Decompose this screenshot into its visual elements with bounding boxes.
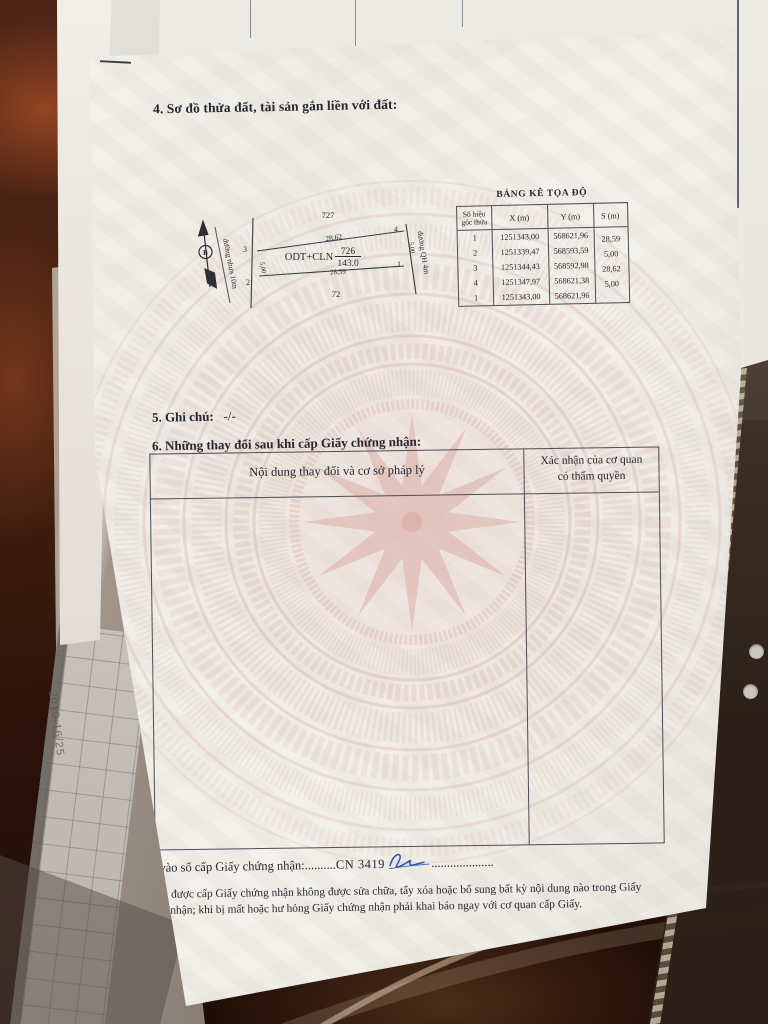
plot-number: 726 (341, 247, 356, 257)
registry-dots: .................... (431, 855, 494, 870)
adjacent-plot-bottom: 72 (332, 289, 341, 299)
corner-id: 3 (458, 263, 492, 273)
corner-1: 1 (397, 260, 401, 269)
changes-col2-header: Xác nhận của cơ quan có thẩm quyền (524, 452, 658, 485)
y-value: 568621,38 (549, 276, 595, 286)
y-value: 568621,96 (548, 231, 594, 241)
corner-id: 1 (458, 233, 492, 243)
back-sheet-edge-line (737, 0, 739, 208)
signature-scribble-icon (386, 849, 432, 874)
y-value: 568592,98 (548, 261, 594, 271)
photo-scene: { "colors": { "paper": "#f2efe9", "water… (0, 0, 768, 1024)
adjacent-plot-top: 727 (322, 210, 335, 220)
header-divider (151, 491, 659, 499)
y-value: 568593,59 (548, 246, 594, 256)
s-value: 5,00 (595, 279, 629, 289)
registry-dots: .......... (305, 858, 336, 873)
punch-hole (749, 644, 764, 659)
corner-3: 3 (243, 245, 247, 254)
edge-left-length: 5,00 (258, 261, 267, 274)
x-value: 1251339,47 (492, 247, 548, 257)
edge-top-length: 28,62 (325, 232, 343, 243)
corner-2: 2 (246, 278, 250, 287)
col-header-s: S (m) (593, 211, 627, 221)
plot-diagram: B đường nhựa 10m 3 2 4 1 727 72 28,62 28… (158, 196, 450, 324)
y-value: 568621,96 (549, 291, 595, 301)
section5-label: 5. Ghi chú: (152, 409, 214, 425)
north-label: B (203, 249, 208, 257)
x-value: 1251343,00 (493, 292, 549, 302)
road-label-right: đường QH 4m (416, 230, 432, 274)
corner-id: 1 (459, 293, 493, 303)
x-value: 1251343,00 (492, 232, 548, 242)
s-value: 28,59 (594, 234, 628, 244)
corner-id: 4 (459, 278, 493, 288)
col-header-y: Y (m) (547, 212, 593, 222)
plot-area: 143.0 (337, 259, 359, 269)
edge-right-length: 5,00 (407, 242, 416, 254)
back-sheet-column-line (462, 0, 463, 27)
col-header-x: X (m) (491, 213, 547, 223)
s-value: 28,62 (594, 264, 628, 274)
section5-value: -/- (223, 408, 236, 423)
corner-id: 2 (458, 248, 492, 258)
registry-label: Số vào sổ cấp Giấy chứng nhận: (143, 858, 305, 875)
x-value: 1251344,43 (492, 262, 548, 272)
section5-note: 5. Ghi chú: -/- (152, 408, 236, 425)
coordinate-table: BẢNG KÊ TỌA ĐỘ Số hiệu góc thửa X (m) Y … (454, 187, 633, 311)
registry-number: CN 3419 (336, 857, 385, 872)
corner-4: 4 (394, 225, 398, 234)
road-label-left: đường nhựa 10m (221, 238, 240, 290)
s-value: 5,00 (594, 249, 628, 259)
back-sheet-column-line (250, 0, 251, 38)
coordinate-table-grid: Số hiệu góc thửa X (m) Y (m) S (m) 1 125… (456, 202, 630, 307)
column-divider (523, 449, 530, 844)
plot-use-label: ODT+CLN (285, 252, 334, 263)
changes-table: Nội dung thay đổi và cơ sở pháp lý Xác n… (149, 446, 664, 850)
x-value: 1251347,97 (493, 277, 549, 287)
punch-hole (743, 684, 758, 699)
changes-col1-header: Nội dung thay đổi và cơ sở pháp lý (150, 461, 523, 481)
